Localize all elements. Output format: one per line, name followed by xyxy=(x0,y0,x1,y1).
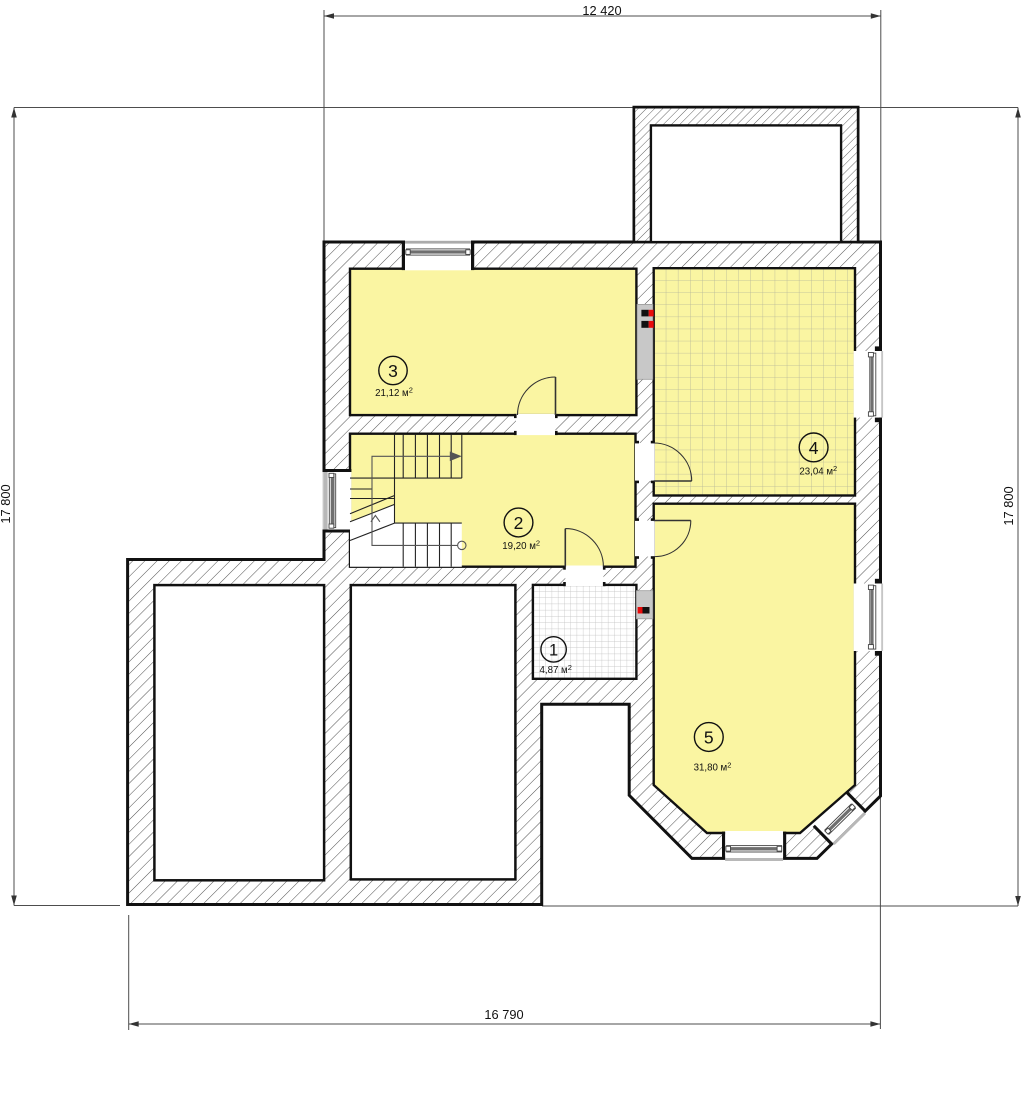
svg-text:17 800: 17 800 xyxy=(1001,486,1016,525)
svg-text:31,80 м2: 31,80 м2 xyxy=(694,760,732,773)
svg-text:17 800: 17 800 xyxy=(0,484,13,523)
svg-text:16 790: 16 790 xyxy=(484,1007,523,1022)
svg-text:3: 3 xyxy=(388,361,398,381)
svg-text:19,20 м2: 19,20 м2 xyxy=(502,539,540,552)
svg-text:4,87 м2: 4,87 м2 xyxy=(540,663,572,676)
svg-text:23,04 м2: 23,04 м2 xyxy=(799,464,837,477)
svg-text:1: 1 xyxy=(549,641,558,659)
svg-text:4: 4 xyxy=(809,438,819,458)
svg-text:2: 2 xyxy=(514,513,524,533)
svg-text:21,12 м2: 21,12 м2 xyxy=(375,386,413,399)
svg-text:5: 5 xyxy=(704,728,714,748)
svg-text:12 420: 12 420 xyxy=(582,3,621,18)
